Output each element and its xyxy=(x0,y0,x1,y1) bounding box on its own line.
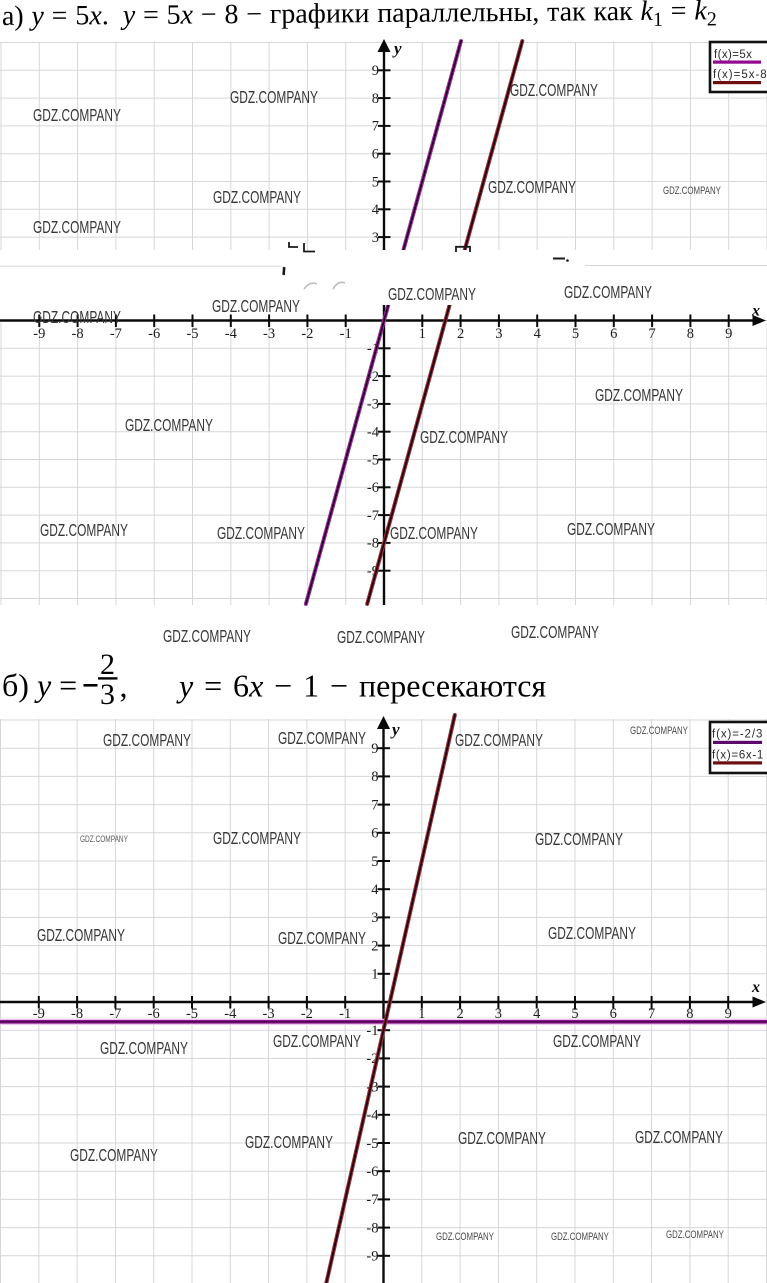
svg-text:-5: -5 xyxy=(186,326,198,342)
svg-text:GDZ.COMPANY: GDZ.COMPANY xyxy=(337,628,425,648)
svg-text:1: 1 xyxy=(371,967,378,983)
svg-text:,: , xyxy=(120,668,128,704)
svg-text:f(x)=5x: f(x)=5x xyxy=(714,49,752,61)
svg-text:GDZ.COMPANY: GDZ.COMPANY xyxy=(458,1129,546,1149)
svg-text:-5: -5 xyxy=(367,452,379,468)
svg-text:4: 4 xyxy=(371,882,379,898)
svg-text:-4: -4 xyxy=(225,326,238,342)
svg-text:GDZ.COMPANY: GDZ.COMPANY xyxy=(488,178,576,198)
svg-text:1: 1 xyxy=(419,326,426,342)
svg-text:-9: -9 xyxy=(33,326,45,342)
svg-text:3: 3 xyxy=(495,326,502,342)
svg-text:y: y xyxy=(390,720,400,739)
svg-text:GDZ.COMPANY: GDZ.COMPANY xyxy=(455,731,543,751)
svg-text:GDZ.COMPANY: GDZ.COMPANY xyxy=(390,524,478,544)
svg-text:6: 6 xyxy=(371,826,378,842)
svg-text:5: 5 xyxy=(572,326,579,342)
svg-text:-8: -8 xyxy=(72,326,84,342)
svg-text:9: 9 xyxy=(371,741,378,757)
svg-text:f(x)=5x-8: f(x)=5x-8 xyxy=(713,69,767,81)
svg-text:-1: -1 xyxy=(340,326,352,342)
svg-text:-8: -8 xyxy=(366,1220,378,1236)
svg-text:2: 2 xyxy=(371,938,378,954)
svg-text:6: 6 xyxy=(610,326,617,342)
svg-text:GDZ.COMPANY: GDZ.COMPANY xyxy=(278,929,366,949)
svg-text:3: 3 xyxy=(372,230,379,246)
svg-text:GDZ.COMPANY: GDZ.COMPANY xyxy=(230,88,318,108)
svg-text:8: 8 xyxy=(687,326,694,342)
svg-text:GDZ.COMPANY: GDZ.COMPANY xyxy=(33,106,121,126)
svg-text:-4: -4 xyxy=(366,1108,379,1124)
svg-text:-5: -5 xyxy=(366,1136,378,1152)
svg-text:-7: -7 xyxy=(110,326,122,342)
svg-text:-1: -1 xyxy=(366,1023,378,1039)
svg-text:GDZ.COMPANY: GDZ.COMPANY xyxy=(388,285,476,305)
svg-text:6: 6 xyxy=(372,147,379,163)
svg-text:GDZ.COMPANY: GDZ.COMPANY xyxy=(33,308,121,328)
svg-text:-6: -6 xyxy=(148,326,160,342)
svg-text:-4: -4 xyxy=(367,425,380,441)
svg-text:-6: -6 xyxy=(367,480,379,496)
svg-text:5: 5 xyxy=(372,174,379,190)
svg-text:GDZ.COMPANY: GDZ.COMPANY xyxy=(100,1039,188,1059)
svg-text:GDZ.COMPANY: GDZ.COMPANY xyxy=(213,188,301,208)
svg-text:GDZ.COMPANY: GDZ.COMPANY xyxy=(37,926,125,946)
svg-text:GDZ.COMPANY: GDZ.COMPANY xyxy=(80,834,129,844)
svg-text:б) y =: б) y = xyxy=(2,667,77,703)
svg-text:GDZ.COMPANY: GDZ.COMPANY xyxy=(436,1231,494,1244)
svg-text:4: 4 xyxy=(534,326,542,342)
svg-text:GDZ.COMPANY: GDZ.COMPANY xyxy=(551,1231,609,1244)
svg-text:GDZ.COMPANY: GDZ.COMPANY xyxy=(535,830,623,850)
svg-text:GDZ.COMPANY: GDZ.COMPANY xyxy=(125,416,213,436)
svg-text:-9: -9 xyxy=(366,1249,378,1265)
svg-text:8: 8 xyxy=(371,769,378,785)
svg-text:GDZ.COMPANY: GDZ.COMPANY xyxy=(630,725,688,738)
svg-text:GDZ.COMPANY: GDZ.COMPANY xyxy=(595,386,683,406)
svg-text:7: 7 xyxy=(372,119,379,135)
svg-text:GDZ.COMPANY: GDZ.COMPANY xyxy=(564,283,652,303)
svg-text:GDZ.COMPANY: GDZ.COMPANY xyxy=(635,1128,723,1148)
svg-text:GDZ.COMPANY: GDZ.COMPANY xyxy=(567,520,655,540)
svg-text:GDZ.COMPANY: GDZ.COMPANY xyxy=(273,1032,361,1052)
svg-text:GDZ.COMPANY: GDZ.COMPANY xyxy=(553,1032,641,1052)
svg-text:а) y = 5x. y = 5x − 8 − график: а) y = 5x. y = 5x − 8 − графики параллел… xyxy=(2,0,717,36)
svg-text:GDZ.COMPANY: GDZ.COMPANY xyxy=(278,729,366,749)
svg-text:-8: -8 xyxy=(367,536,379,552)
svg-text:GDZ.COMPANY: GDZ.COMPANY xyxy=(70,1146,158,1166)
svg-text:GDZ.COMPANY: GDZ.COMPANY xyxy=(548,924,636,944)
svg-text:4: 4 xyxy=(372,202,380,218)
svg-text:f(x)=6x-1: f(x)=6x-1 xyxy=(712,750,764,762)
svg-text:GDZ.COMPANY: GDZ.COMPANY xyxy=(212,297,300,317)
svg-text:GDZ.COMPANY: GDZ.COMPANY xyxy=(663,185,721,198)
svg-text:3: 3 xyxy=(100,678,115,711)
svg-text:GDZ.COMPANY: GDZ.COMPANY xyxy=(245,1133,333,1153)
svg-text:x: x xyxy=(751,979,760,996)
svg-text:GDZ.COMPANY: GDZ.COMPANY xyxy=(666,1229,724,1242)
svg-text:GDZ.COMPANY: GDZ.COMPANY xyxy=(510,81,598,101)
svg-text:-7: -7 xyxy=(367,508,379,524)
svg-text:y = 6x − 1 − пересекаются: y = 6x − 1 − пересекаются xyxy=(176,668,546,704)
svg-text:3: 3 xyxy=(371,910,378,926)
svg-text:GDZ.COMPANY: GDZ.COMPANY xyxy=(511,623,599,643)
svg-text:GDZ.COMPANY: GDZ.COMPANY xyxy=(420,428,508,448)
svg-text:GDZ.COMPANY: GDZ.COMPANY xyxy=(33,218,121,238)
svg-text:9: 9 xyxy=(725,326,732,342)
svg-text:GDZ.COMPANY: GDZ.COMPANY xyxy=(163,627,251,647)
svg-text:5: 5 xyxy=(371,854,378,870)
svg-text:7: 7 xyxy=(371,797,378,813)
svg-text:-3: -3 xyxy=(367,397,379,413)
svg-text:-6: -6 xyxy=(366,1164,378,1180)
svg-text:2: 2 xyxy=(100,648,115,681)
svg-text:y: y xyxy=(392,39,402,58)
svg-text:-3: -3 xyxy=(263,326,275,342)
svg-text:7: 7 xyxy=(648,326,655,342)
svg-text:-7: -7 xyxy=(366,1192,378,1208)
svg-text:9: 9 xyxy=(372,63,379,79)
svg-text:GDZ.COMPANY: GDZ.COMPANY xyxy=(213,829,301,849)
svg-text:GDZ.COMPANY: GDZ.COMPANY xyxy=(40,521,128,541)
svg-text:x: x xyxy=(751,303,760,320)
svg-text:8: 8 xyxy=(372,91,379,107)
svg-text:GDZ.COMPANY: GDZ.COMPANY xyxy=(103,731,191,751)
svg-text:2: 2 xyxy=(457,326,464,342)
svg-text:GDZ.COMPANY: GDZ.COMPANY xyxy=(217,524,305,544)
svg-text:-2: -2 xyxy=(301,326,313,342)
svg-text:f(x)=-2/3: f(x)=-2/3 xyxy=(712,729,763,741)
